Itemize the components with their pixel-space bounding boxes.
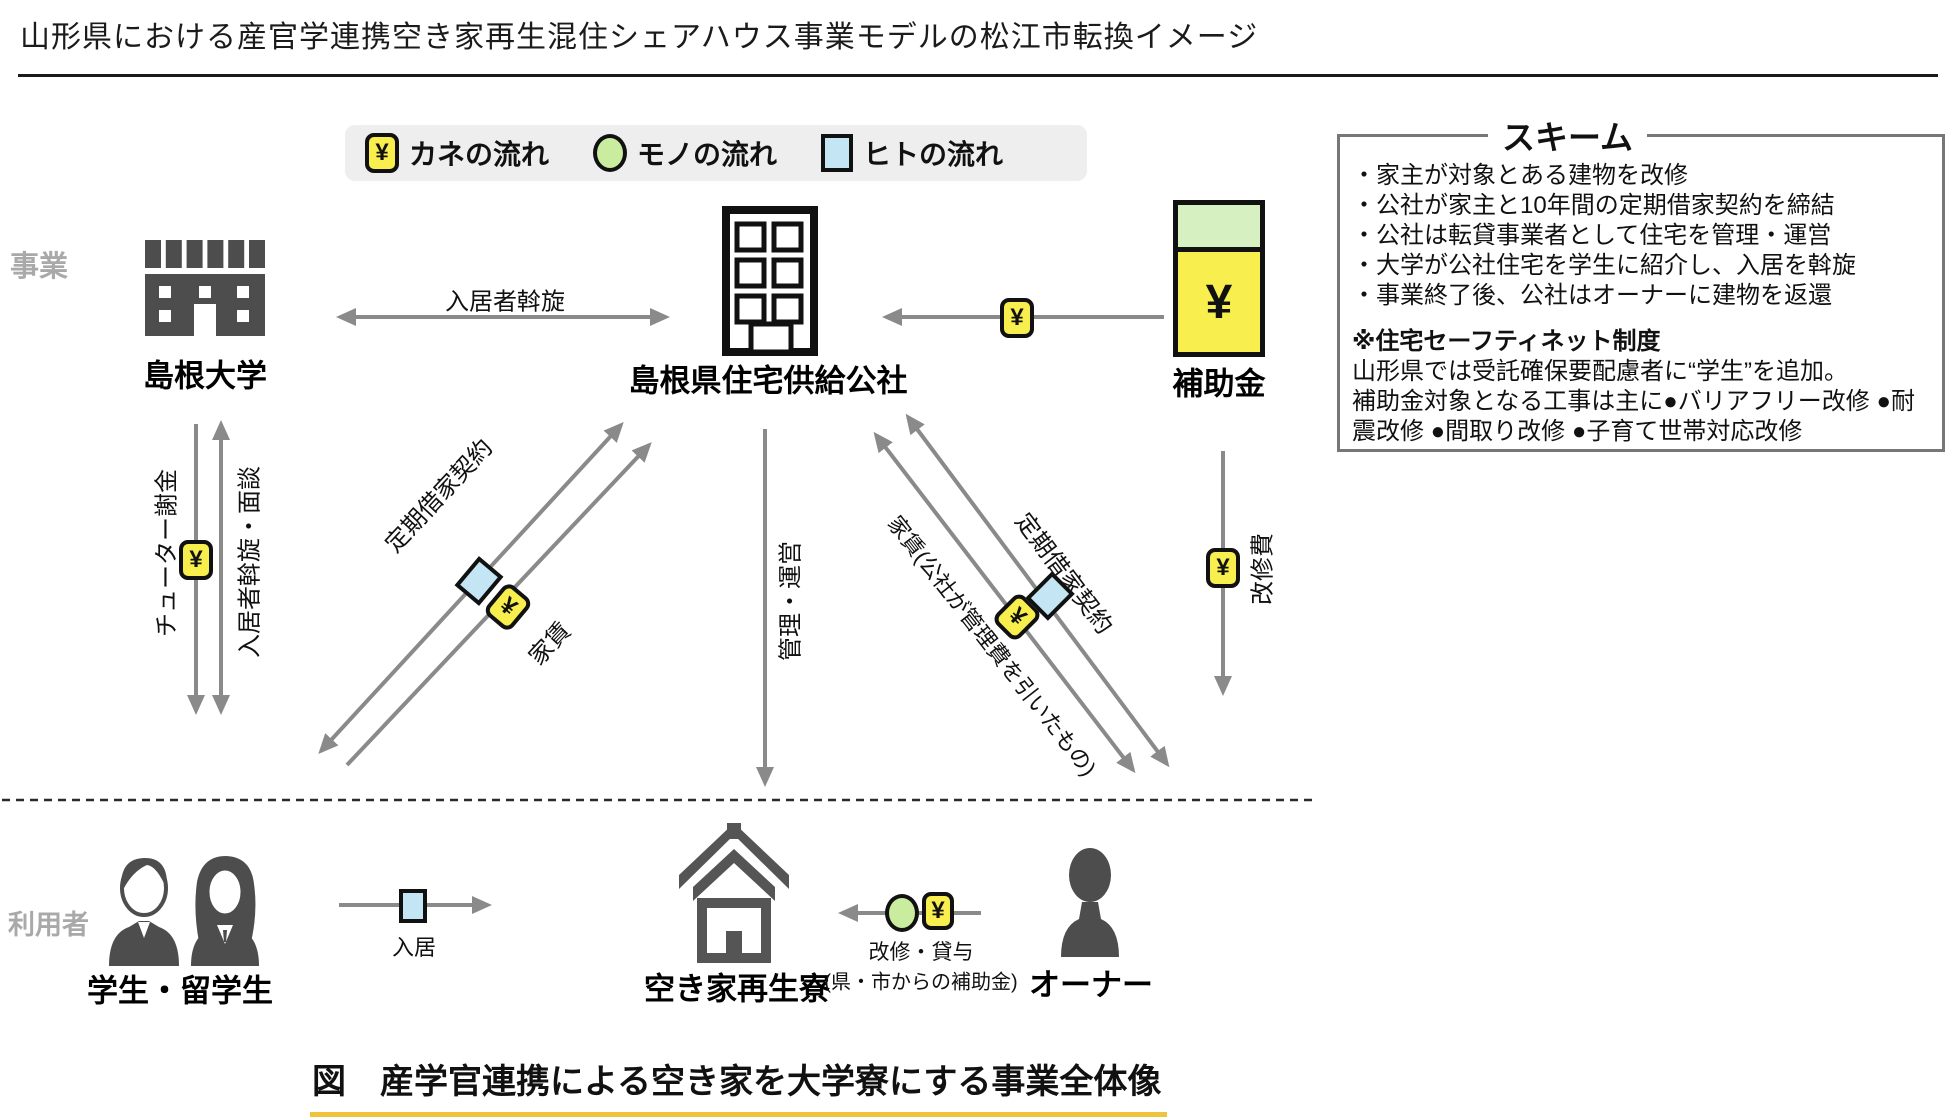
yen-glyph: ¥ <box>931 899 944 923</box>
scheme-item: ・公社が家主と10年間の定期借家契約を締結 <box>1352 191 1928 221</box>
legend-money-label: カネの流れ <box>409 133 549 173</box>
dormitory-house-icon <box>677 823 792 965</box>
yen-glyph: ¥ <box>189 548 202 572</box>
money-flow-icon: ¥ <box>365 133 399 173</box>
scheme-note: ※住宅セーフティネット制度 山形県では受託確保要配慮者に“学生”を追加。 補助金… <box>1352 327 1928 447</box>
legend-people: ヒトの流れ <box>821 133 1003 173</box>
flow-label-renovation-lending: 改修・貸与 <box>869 936 974 966</box>
scheme-note-line: 補助金対象となる工事は主に●バリアフリー改修 ●耐震改修 ●間取り改修 ●子育て… <box>1352 387 1928 447</box>
subsidy-money-icon: ¥ <box>1173 200 1265 357</box>
owner-person-icon <box>1051 847 1129 957</box>
money-badge-renovation-lending: ¥ <box>922 892 954 930</box>
scheme-panel: スキーム ・家主が対象とある建物を改修 ・公社が家主と10年間の定期借家契約を締… <box>1337 134 1945 452</box>
flow-label-renovation-cost: 改修費 <box>1243 533 1278 605</box>
yen-glyph: ¥ <box>495 594 521 621</box>
scheme-item: ・大学が公社住宅を学生に紹介し、入居を斡旋 <box>1352 251 1928 281</box>
male-student-icon <box>105 850 183 966</box>
legend-goods-label: モノの流れ <box>637 133 777 173</box>
scheme-item: ・家主が対象とある建物を改修 <box>1352 161 1928 191</box>
scheme-body: ・家主が対象とある建物を改修 ・公社が家主と10年間の定期借家契約を締結 ・公社… <box>1340 137 1942 447</box>
yen-glyph: ¥ <box>1010 306 1023 330</box>
goods-flow-icon <box>593 134 627 172</box>
yen-glyph: ¥ <box>1004 604 1030 630</box>
scheme-item: ・公社は転貸事業者として住宅を管理・運営 <box>1352 221 1928 251</box>
money-badge-subsidy-to-corporation: ¥ <box>1000 298 1034 338</box>
scheme-note-title: ※住宅セーフティネット制度 <box>1352 327 1928 357</box>
diagram-canvas: 山形県における産官学連携空き家再生混住シェアハウス事業モデルの松江市転換イメージ <box>0 0 1958 1117</box>
legend-money: ¥ カネの流れ <box>365 133 549 173</box>
scheme-note-line: 山形県では受託確保要配慮者に“学生”を追加。 <box>1352 357 1928 387</box>
scheme-item: ・事業終了後、公社はオーナーに建物を返還 <box>1352 281 1928 311</box>
subsidy-green-section <box>1178 205 1260 252</box>
corporation-building-icon <box>722 206 818 356</box>
flow-label-renovation-lending-note: (県・市からの補助金) <box>824 966 1017 995</box>
goods-badge-renovation-lending <box>885 894 919 932</box>
money-badge-renovation-cost: ¥ <box>1206 548 1240 588</box>
legend-goods: モノの流れ <box>593 133 777 173</box>
yen-glyph: ¥ <box>1216 556 1229 580</box>
subsidy-yen-glyph: ¥ <box>1178 252 1260 352</box>
legend: ¥ カネの流れ モノの流れ ヒトの流れ <box>345 125 1087 181</box>
scheme-title: スキーム <box>1488 111 1647 159</box>
people-badge-move-in <box>399 889 427 923</box>
people-flow-icon <box>821 134 853 172</box>
flow-label-referral-interview: 入居者斡旋・面談 <box>230 466 265 658</box>
flow-label-management: 管理・運営 <box>771 541 806 661</box>
flow-label-move-in: 入居 <box>392 930 436 962</box>
legend-people-label: ヒトの流れ <box>863 133 1003 173</box>
money-badge-tutor-fee: ¥ <box>179 540 213 580</box>
flow-label-tutor-fee: チューター謝金 <box>147 469 182 637</box>
flow-label-tenant-referral: 入居者斡旋 <box>445 282 565 317</box>
students-icon <box>105 850 265 966</box>
female-student-icon <box>185 850 265 966</box>
yen-glyph: ¥ <box>375 141 388 165</box>
university-building-icon <box>145 240 265 336</box>
